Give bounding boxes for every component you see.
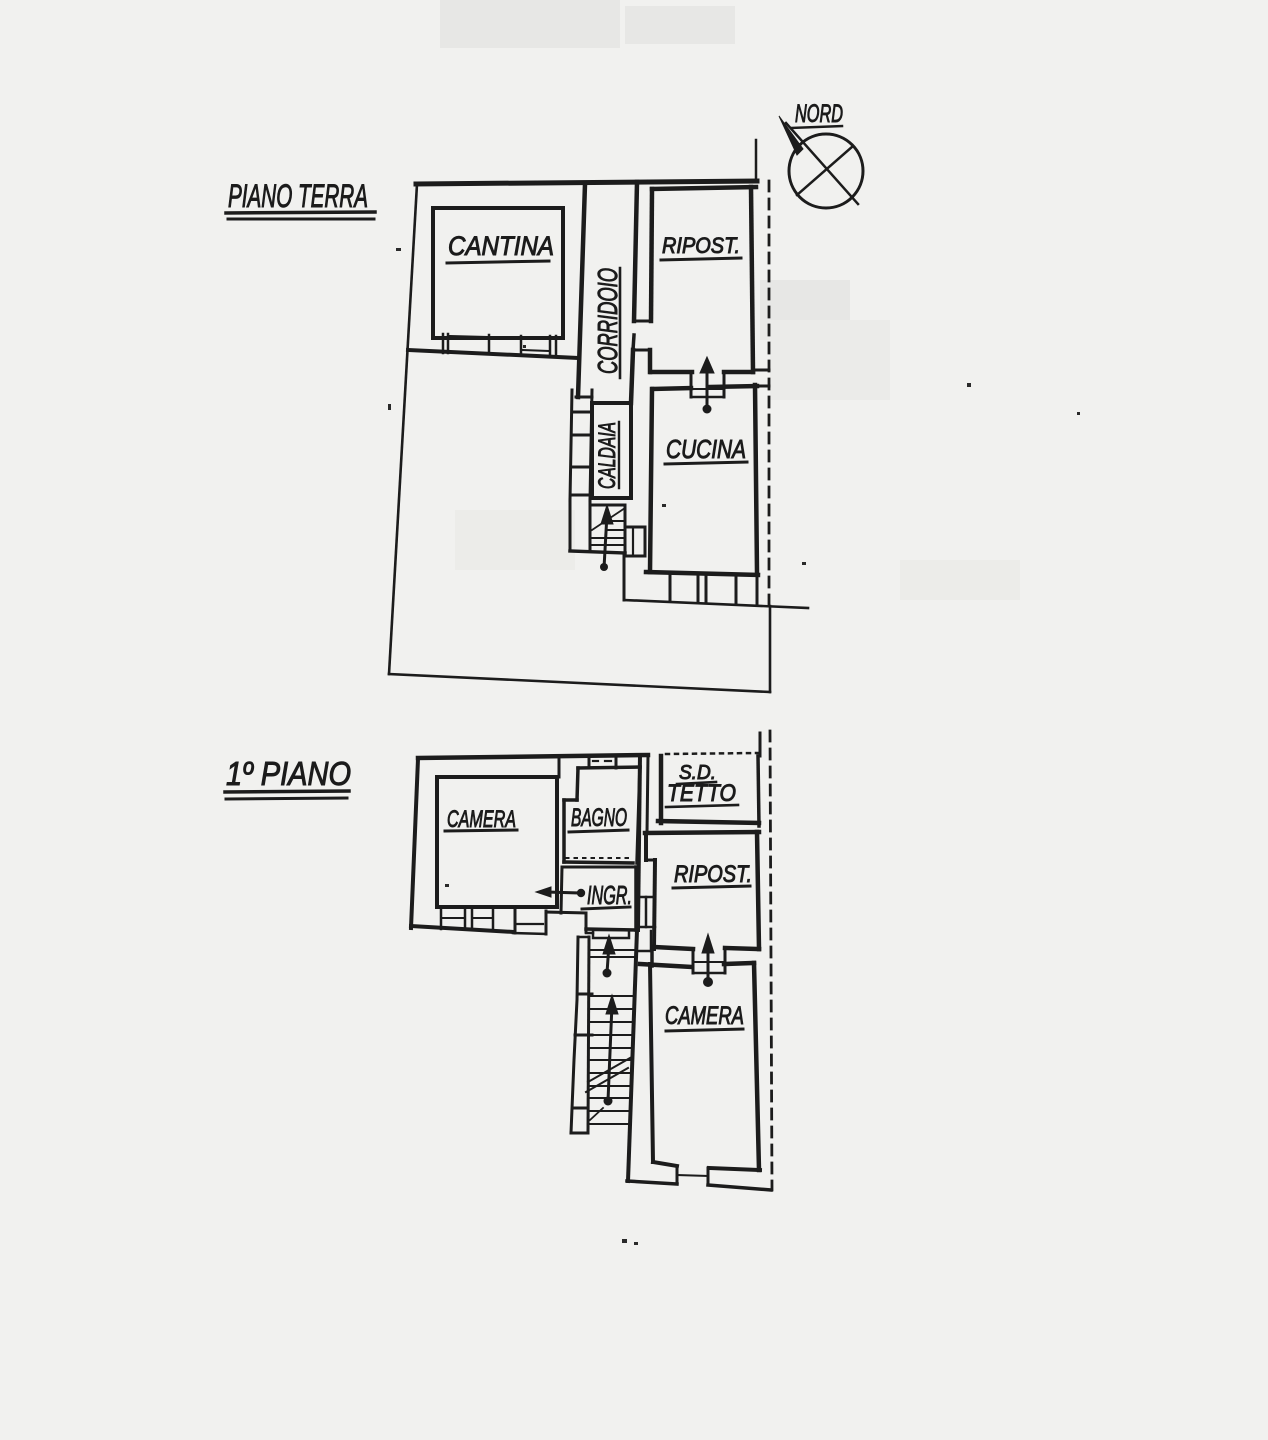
svg-text:NORD: NORD (795, 100, 843, 128)
svg-text:CANTINA: CANTINA (448, 231, 554, 261)
svg-text:CUCINA: CUCINA (666, 434, 746, 464)
svg-text:PIANO TERRA: PIANO TERRA (228, 178, 368, 214)
svg-text:CORRIDOIO: CORRIDOIO (592, 268, 623, 374)
svg-text:RIPOST.: RIPOST. (674, 861, 752, 888)
svg-text:RIPOST.: RIPOST. (662, 233, 740, 258)
svg-text:CAMERA: CAMERA (665, 1002, 744, 1030)
svg-text:BAGNO: BAGNO (571, 804, 627, 832)
svg-text:1º PIANO: 1º PIANO (226, 755, 351, 792)
svg-text:INGR.: INGR. (587, 880, 632, 910)
svg-text:TETTO: TETTO (667, 780, 736, 807)
svg-text:CALDAIA: CALDAIA (594, 422, 621, 489)
